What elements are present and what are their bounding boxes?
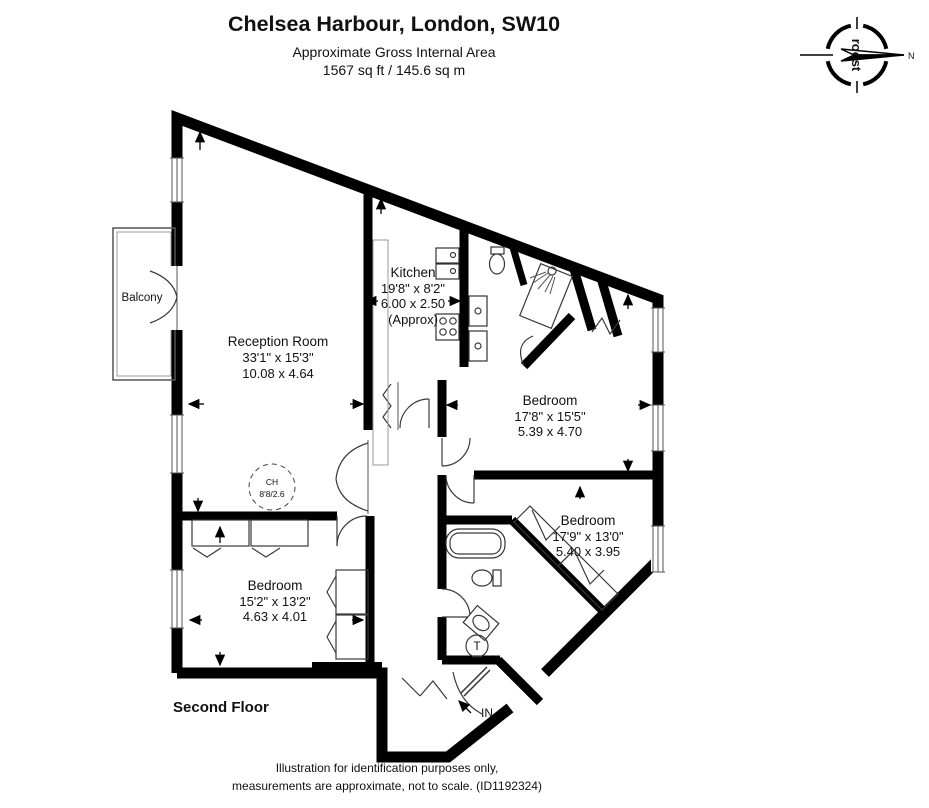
svg-text:19'8" x 8'2": 19'8" x 8'2" [381,281,445,296]
svg-text:15'2" x 13'2": 15'2" x 13'2" [239,594,311,609]
balcony-label: Balcony [122,292,163,304]
bedroom-top-label: Bedroom 17'8" x 15'5" 5.39 x 4.70 [514,393,586,439]
compass-north-label: N [908,51,915,61]
ceiling-height-badge: CH 8'8/2.6 [249,464,295,510]
footer-line1: Illustration for identification purposes… [276,761,499,775]
svg-text:5.40 x 3.95: 5.40 x 3.95 [556,544,620,559]
kitchen-hob [436,314,459,340]
svg-text:33'1" x 15'3": 33'1" x 15'3" [242,350,314,365]
compass-icon: roost N [800,17,915,93]
page-subtitle: Approximate Gross Internal Area [292,44,495,60]
bathtub-icon [446,529,505,558]
footer-line2: measurements are approximate, not to sca… [232,779,542,793]
svg-text:Bedroom: Bedroom [248,578,303,593]
page-title: Chelsea Harbour, London, SW10 [228,12,560,36]
ceiling-height-value: 8'8/2.6 [259,489,285,499]
svg-text:(Approx): (Approx) [388,312,438,327]
svg-text:5.39 x 4.70: 5.39 x 4.70 [518,424,582,439]
svg-text:17'9" x 13'0": 17'9" x 13'0" [552,529,624,544]
ceiling-height-label: CH [266,477,278,487]
vanity-basins [469,296,487,361]
floor-plan: Chelsea Harbour, London, SW10 Approximat… [0,0,929,808]
svg-text:10.08 x 4.64: 10.08 x 4.64 [242,366,314,381]
tank-symbol: T [466,635,488,657]
svg-text:Bedroom: Bedroom [561,513,616,528]
compass-brand: roost [849,39,864,72]
entry-label: IN [481,706,493,720]
svg-text:Kitchen: Kitchen [390,265,435,280]
kitchen-counter [373,240,388,465]
kitchen-sink [436,248,459,279]
toilet-icon-utility [490,247,505,274]
floor-label: Second Floor [173,699,269,716]
entry-door: IN [402,667,493,720]
page-area: 1567 sq ft / 145.6 sq m [323,62,465,78]
svg-text:6.00 x 2.50: 6.00 x 2.50 [381,296,445,311]
outer-walls [177,118,658,757]
svg-text:Bedroom: Bedroom [523,393,578,408]
entry-arrow [459,701,471,713]
tank-label: T [473,641,480,653]
bedroom-middle-label: Bedroom 17'9" x 13'0" 5.40 x 3.95 [552,513,624,559]
toilet-icon-bathroom [472,570,501,586]
reception-label: Reception Room 33'1" x 15'3" 10.08 x 4.6… [228,334,329,381]
svg-text:4.63 x 4.01: 4.63 x 4.01 [243,609,307,624]
svg-text:Reception Room: Reception Room [228,334,329,349]
bathroom-fixtures: T [446,529,505,657]
svg-text:17'8" x 15'5": 17'8" x 15'5" [514,409,586,424]
bedroom-left-label: Bedroom 15'2" x 13'2" 4.63 x 4.01 [239,578,311,624]
floorplan-page: Chelsea Harbour, London, SW10 Approximat… [0,0,929,808]
